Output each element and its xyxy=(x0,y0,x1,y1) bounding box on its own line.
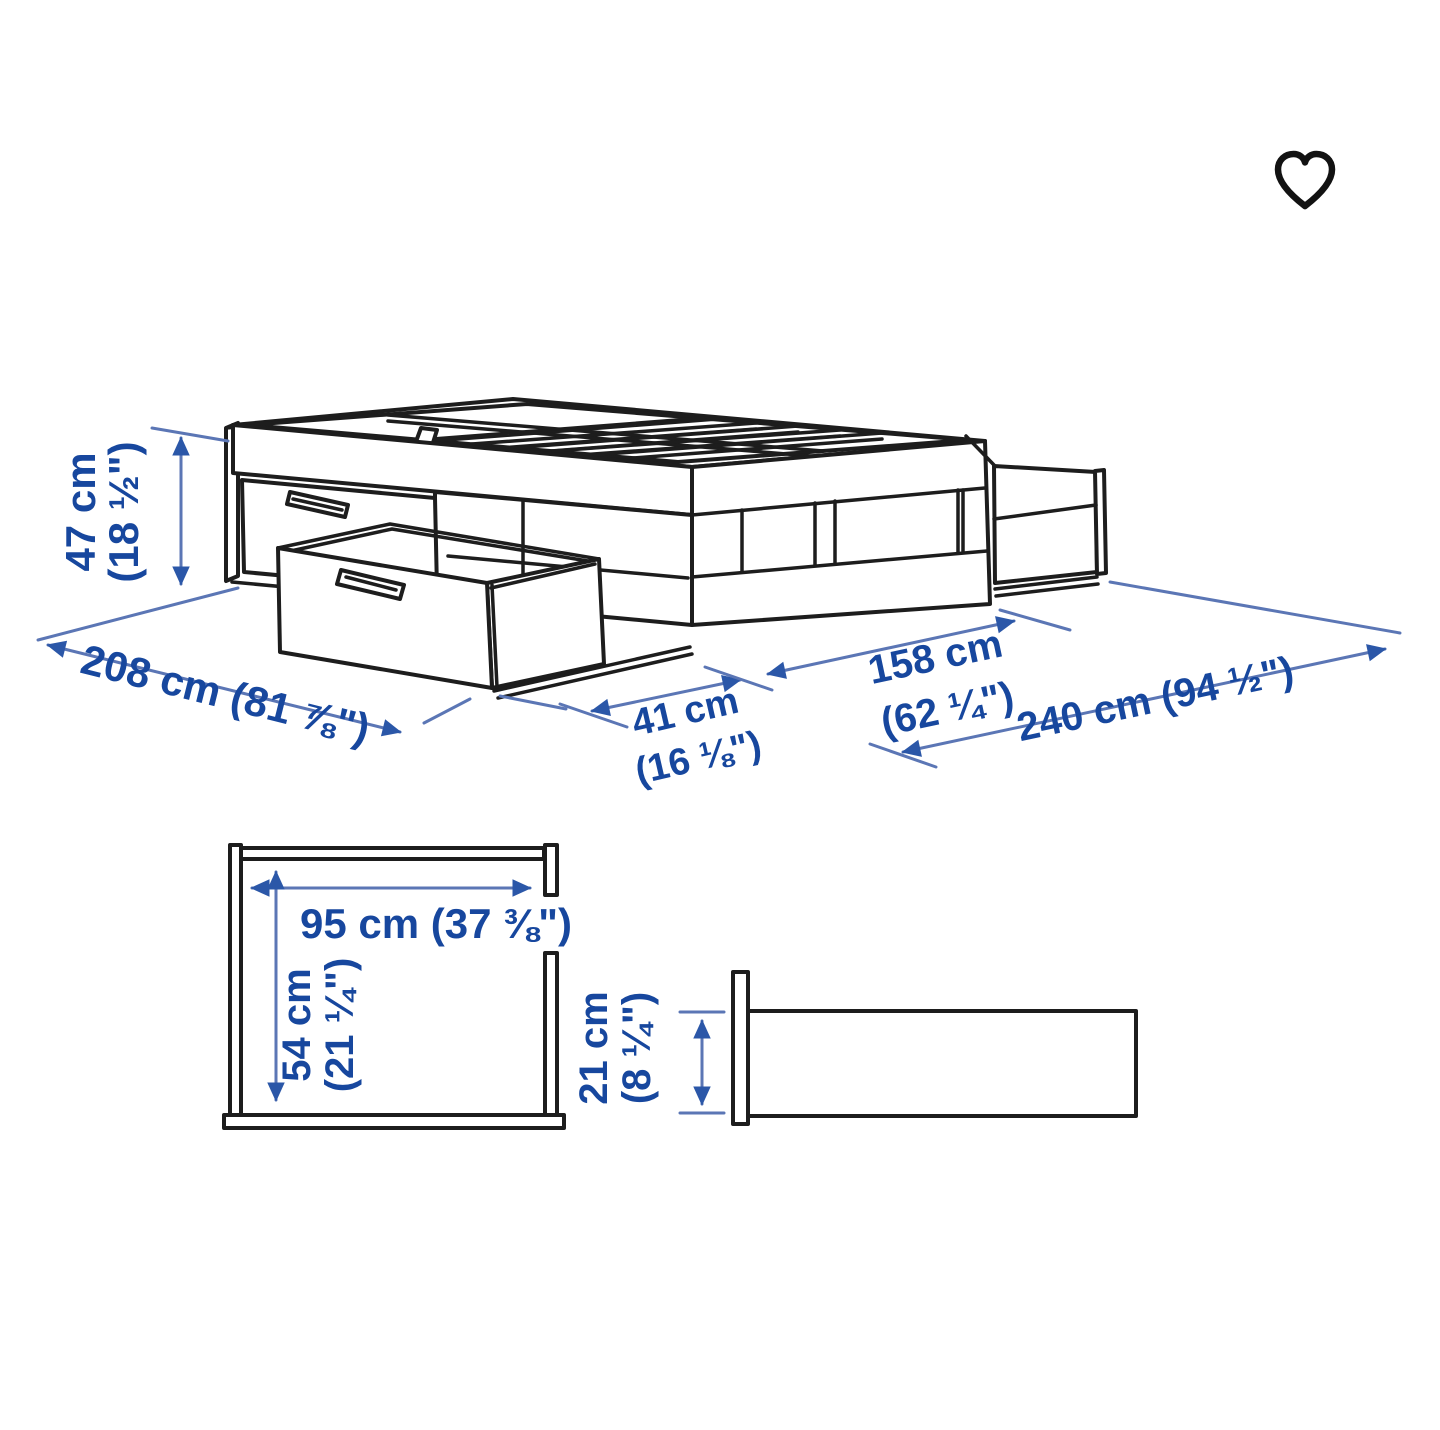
label-drawer-height-cm: 21 cm xyxy=(572,991,616,1104)
label-drawer-width: 95 cm (37 ⅜") xyxy=(300,900,572,947)
label-height-cm: 47 cm xyxy=(57,452,104,571)
ext-line xyxy=(38,588,238,640)
label-drawer-depth-cm: 54 cm xyxy=(275,968,319,1081)
left-rail xyxy=(230,845,241,1121)
right-rail-lower xyxy=(545,953,557,1120)
front-bar xyxy=(224,1115,564,1128)
ext-line xyxy=(1110,582,1400,633)
back-bar xyxy=(241,848,544,859)
foot-face xyxy=(692,441,990,625)
tick xyxy=(424,699,470,723)
favorite-button[interactable] xyxy=(1278,154,1332,206)
heart-icon[interactable] xyxy=(1278,154,1332,206)
ext-line xyxy=(152,428,228,441)
drawer-front-edge-panel xyxy=(733,972,748,1124)
right-drawer-box xyxy=(994,466,1097,583)
tick xyxy=(560,704,627,727)
dimension-diagram: 47 cm (18 ½") 208 cm (81 ⅞") 41 cm (16 ⅛… xyxy=(0,0,1440,1430)
label-total-width: 240 cm (94 ½") xyxy=(1013,649,1297,751)
ext-line xyxy=(500,696,566,709)
right-drawer-front-edge xyxy=(1095,470,1106,574)
right-rail-upper xyxy=(545,845,557,895)
drawer-side-view xyxy=(733,972,1136,1124)
label-height-in: (18 ½") xyxy=(100,441,147,582)
label-drawer-height-in: (8 ¼") xyxy=(615,992,659,1104)
drawer-body-profile xyxy=(748,1011,1136,1116)
tick xyxy=(1000,610,1070,630)
label-drawer-depth-in: (21 ¼") xyxy=(318,958,362,1093)
product-dimension-page: 47 cm (18 ½") 208 cm (81 ⅞") 41 cm (16 ⅛… xyxy=(0,0,1440,1430)
